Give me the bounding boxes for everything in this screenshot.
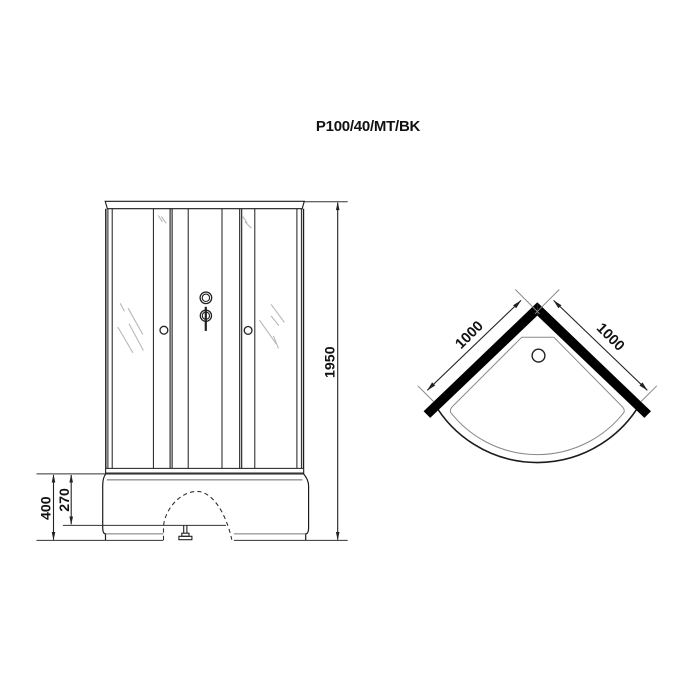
svg-text:1000: 1000 bbox=[593, 320, 627, 354]
svg-text:P100/40/MT/BK: P100/40/MT/BK bbox=[316, 118, 421, 135]
svg-text:1950: 1950 bbox=[322, 346, 338, 378]
svg-text:1000: 1000 bbox=[453, 318, 487, 352]
svg-text:270: 270 bbox=[57, 488, 73, 512]
svg-text:400: 400 bbox=[39, 496, 55, 520]
